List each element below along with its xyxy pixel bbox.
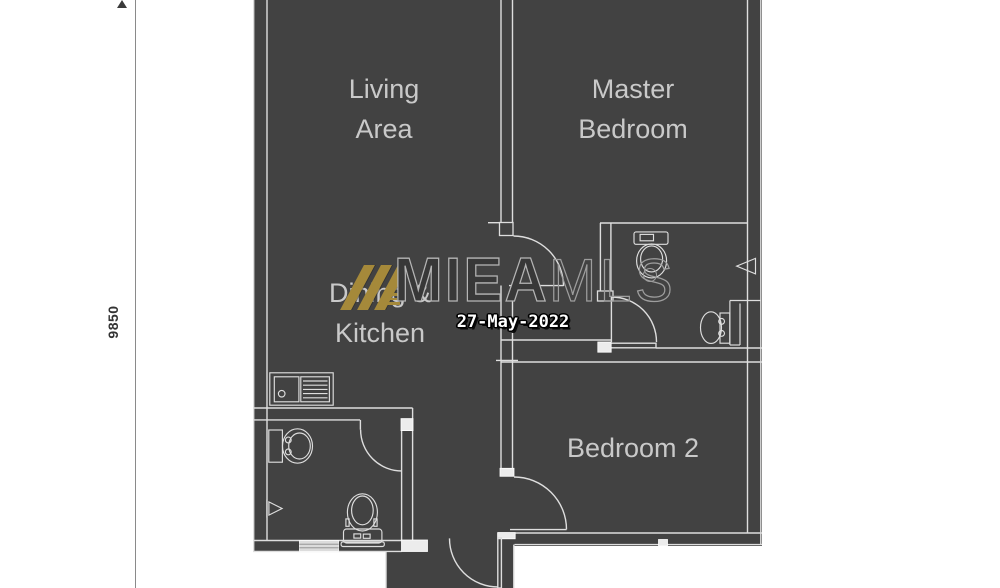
dimension-arrow-icon: [117, 0, 127, 8]
room-label-line: Master: [578, 69, 688, 109]
room-label-master-bedroom: Master Bedroom: [578, 69, 688, 149]
room-label-line: Kitchen: [329, 313, 431, 353]
room-label-line: Bedroom 2: [567, 428, 699, 468]
watermark-brand-secondary: MLS: [549, 247, 676, 314]
registered-trademark-icon: [643, 268, 657, 282]
room-label-bedroom2: Bedroom 2: [567, 428, 699, 468]
floor-plan-image: 9850 Living Area Master Bedroom Dining &…: [0, 0, 1000, 588]
watermark-brand: MIEAMLS: [394, 250, 676, 312]
watermark-brand-primary: MIEA: [394, 246, 549, 315]
room-label-line: Area: [349, 109, 420, 149]
dimension-line: [135, 0, 136, 588]
watermark-date: 27-May-2022: [457, 312, 570, 332]
room-label-line: Living: [349, 69, 420, 109]
room-label-line: Bedroom: [578, 109, 688, 149]
room-label-living-area: Living Area: [349, 69, 420, 149]
dimension-label: 9850: [105, 305, 121, 338]
